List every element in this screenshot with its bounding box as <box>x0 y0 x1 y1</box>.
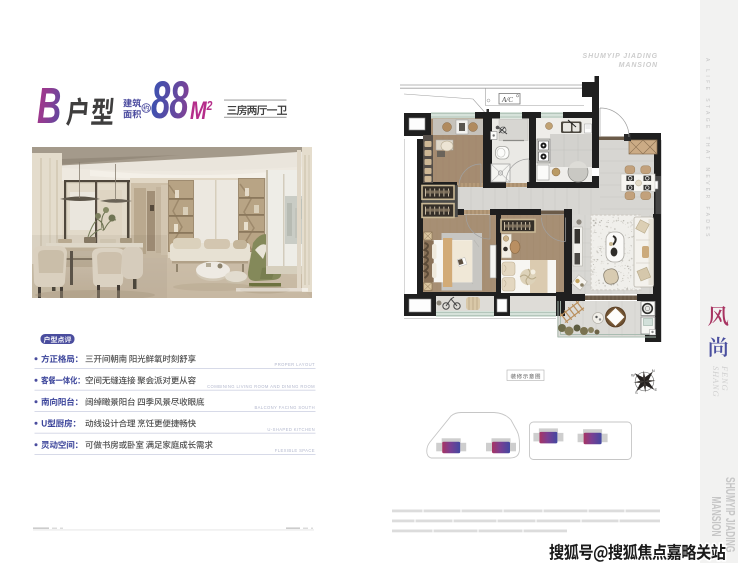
svg-text:E: E <box>655 387 658 392</box>
svg-text:A/C: A/C <box>501 96 513 104</box>
svg-text:N: N <box>652 368 655 373</box>
svg-text:W: W <box>631 373 635 378</box>
svg-text:S: S <box>635 390 638 395</box>
